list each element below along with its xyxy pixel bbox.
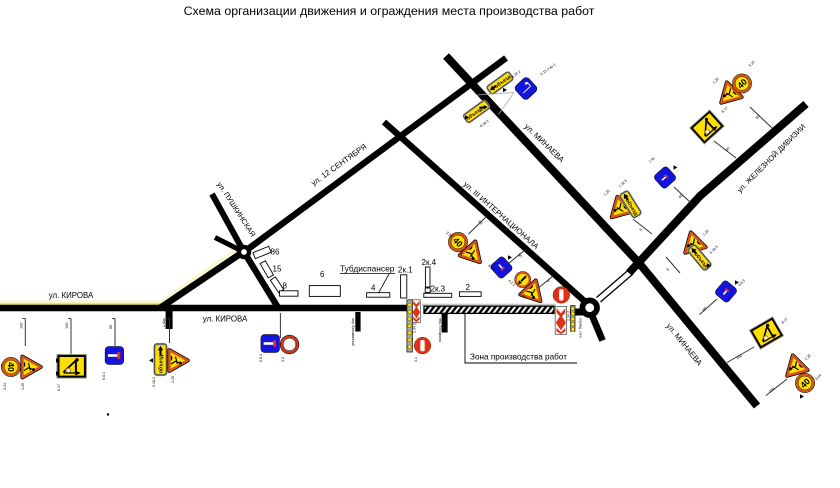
svg-text:50: 50 [755,114,761,120]
svg-text:5: 5 [666,267,670,271]
svg-text:6.17: 6.17 [57,384,61,391]
svg-text:5.15.2 во.1: 5.15.2 во.1 [540,63,557,77]
svg-text:100: 100 [768,387,775,394]
svg-text:8.17: 8.17 [781,317,789,325]
svg-text:2: 2 [466,283,471,292]
svg-text:3.2: 3.2 [281,357,285,362]
svg-text:15: 15 [273,265,282,274]
svg-text:6.18.2: 6.18.2 [511,70,521,79]
svg-text:Тубдиспансер: Тубдиспансер [340,264,395,274]
svg-text:3.24: 3.24 [748,60,756,68]
svg-text:50: 50 [725,146,731,152]
svg-text:100: 100 [65,323,69,329]
svg-text:1.25: 1.25 [712,77,720,85]
svg-text:1.34.2: 1.34.2 [413,323,417,333]
svg-text:огражд. сигн.: огражд. сигн. [579,318,583,339]
svg-text:50: 50 [109,325,113,329]
svg-text:пер.: пер. [162,318,166,325]
svg-text:ул. КИРОВА: ул. КИРОВА [203,315,248,324]
svg-text:ул. КИРОВА: ул. КИРОВА [49,291,94,300]
svg-text:1.25: 1.25 [171,376,175,383]
svg-text:пер. Гончарова: пер. Гончарова [438,318,442,342]
svg-text:8.17: 8.17 [721,106,729,114]
svg-text:100: 100 [736,354,743,361]
svg-text:6.8.3: 6.8.3 [737,279,745,287]
svg-text:6.8.1: 6.8.1 [259,354,263,362]
svg-text:2к.3: 2к.3 [431,285,446,294]
svg-text:1 кв: 1 кв [648,156,655,163]
svg-text:6: 6 [320,270,325,279]
svg-text:4: 4 [371,284,376,293]
svg-text:3.24: 3.24 [3,383,7,390]
svg-text:ул. МИНАЕВА: ул. МИНАЕВА [664,322,704,368]
svg-text:1.34.2: 1.34.2 [567,311,571,321]
svg-text:5: 5 [164,325,168,327]
svg-text:7.19.3: 7.19.3 [618,179,628,189]
svg-text:Схема организации движения и о: Схема организации движения и ограждения … [184,4,595,18]
svg-text:5: 5 [546,279,550,283]
svg-text:пер. Безымянный: пер. Безымянный [351,318,355,346]
svg-text:60: 60 [678,193,684,199]
svg-text:1.25: 1.25 [21,383,25,390]
svg-text:8: 8 [283,282,288,291]
svg-text:2к.4: 2к.4 [422,258,437,267]
svg-text:3.1: 3.1 [414,357,418,362]
svg-text:1.25: 1.25 [603,189,611,197]
svg-text:2к.1: 2к.1 [398,266,413,275]
svg-text:Зона производства работ: Зона производства работ [470,353,567,362]
svg-text:6.18.3: 6.18.3 [479,119,489,128]
svg-text:1.25: 1.25 [804,353,812,361]
svg-text:6.18.3: 6.18.3 [709,245,719,255]
svg-text:50: 50 [702,306,708,312]
svg-text:3.24: 3.24 [814,373,822,381]
svg-text:86: 86 [271,248,280,257]
svg-text:1.25: 1.25 [702,229,710,237]
svg-text:6.18.2: 6.18.2 [152,377,156,387]
svg-text:6.8.1: 6.8.1 [102,372,106,380]
svg-text:5: 5 [639,228,643,232]
svg-text:100: 100 [20,323,24,329]
svg-text:50: 50 [517,253,523,259]
